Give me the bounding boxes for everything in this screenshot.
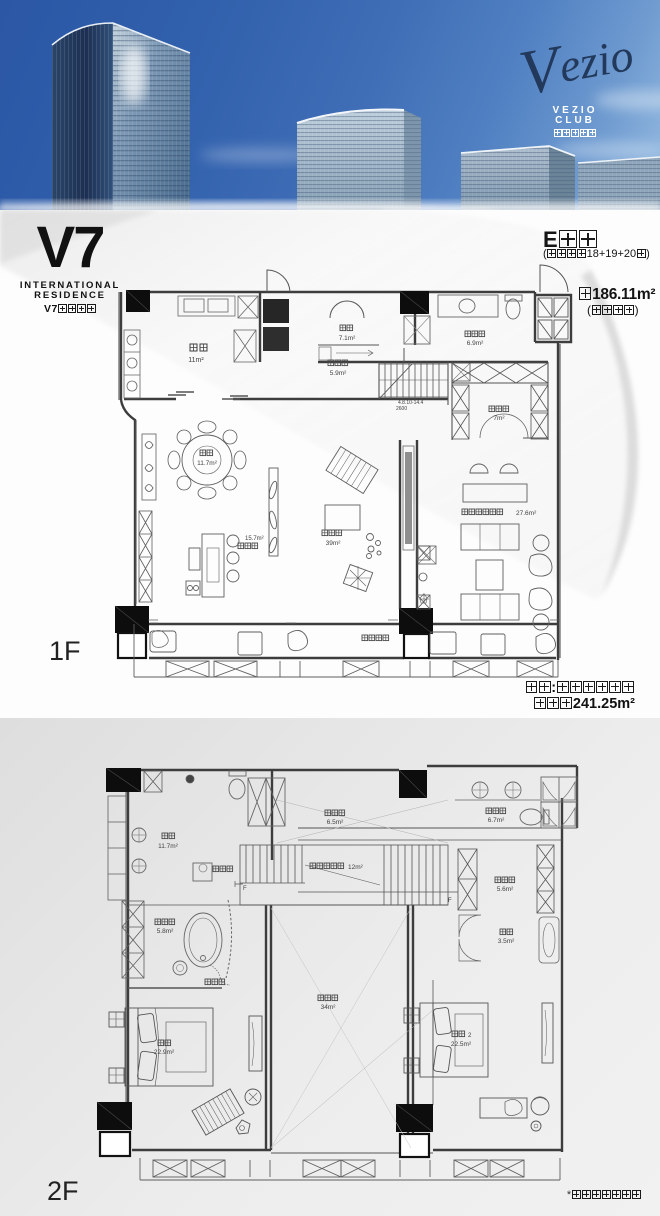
svg-text:12m²: 12m² bbox=[348, 864, 364, 871]
svg-text:2600: 2600 bbox=[396, 406, 407, 412]
svg-text:F: F bbox=[243, 886, 247, 892]
svg-text:5.8m²: 5.8m² bbox=[157, 928, 174, 935]
svg-text:27.6m²: 27.6m² bbox=[516, 510, 537, 517]
svg-text:6.7m²: 6.7m² bbox=[488, 817, 505, 824]
svg-text:5.9m²: 5.9m² bbox=[330, 370, 347, 377]
svg-text:34m²: 34m² bbox=[321, 1004, 337, 1011]
svg-text:5.6m²: 5.6m² bbox=[497, 886, 514, 893]
svg-text:2: 2 bbox=[468, 1033, 472, 1039]
svg-text:22.9m²: 22.9m² bbox=[154, 1049, 175, 1056]
svg-text:7.1m²: 7.1m² bbox=[339, 335, 356, 342]
svg-text:11.7m²: 11.7m² bbox=[158, 843, 179, 850]
svg-text:11.7m²: 11.7m² bbox=[197, 460, 218, 467]
svg-text:F: F bbox=[448, 898, 452, 904]
svg-text:ezio: ezio bbox=[555, 29, 637, 92]
svg-text:7m²: 7m² bbox=[493, 415, 505, 422]
svg-text:6.5m²: 6.5m² bbox=[327, 819, 344, 826]
svg-text:15.7m²: 15.7m² bbox=[245, 536, 264, 542]
svg-text:39m²: 39m² bbox=[326, 540, 342, 547]
svg-text:11m²: 11m² bbox=[188, 357, 204, 364]
svg-text:6.9m²: 6.9m² bbox=[467, 340, 484, 347]
svg-text:3.5m²: 3.5m² bbox=[498, 938, 515, 945]
svg-text:22.5m²: 22.5m² bbox=[451, 1041, 472, 1048]
